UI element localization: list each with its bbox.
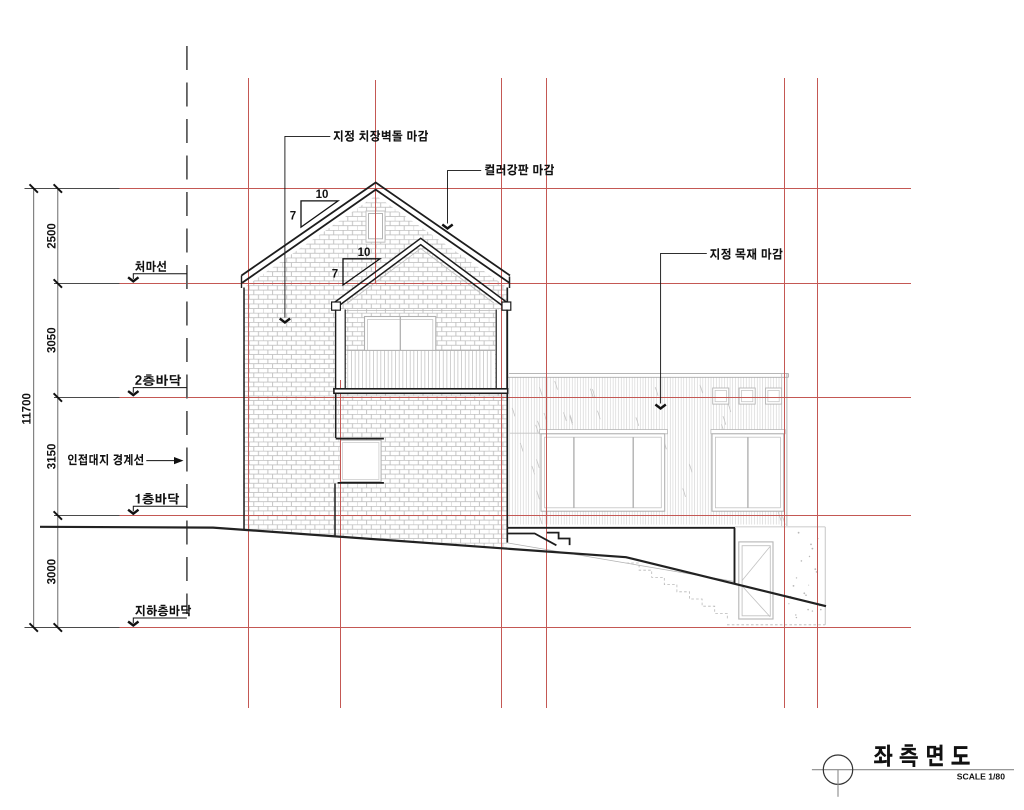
svg-text:3150: 3150	[46, 444, 58, 470]
svg-text:10: 10	[358, 247, 371, 259]
svg-text:3050: 3050	[46, 327, 58, 353]
svg-text:7: 7	[290, 211, 296, 223]
svg-text:7: 7	[332, 269, 338, 281]
svg-text:SCALE 1/80: SCALE 1/80	[957, 771, 1005, 781]
svg-text:3000: 3000	[46, 559, 58, 585]
svg-text:11700: 11700	[22, 393, 34, 424]
svg-text:10: 10	[316, 189, 329, 201]
svg-text:2500: 2500	[46, 223, 58, 249]
